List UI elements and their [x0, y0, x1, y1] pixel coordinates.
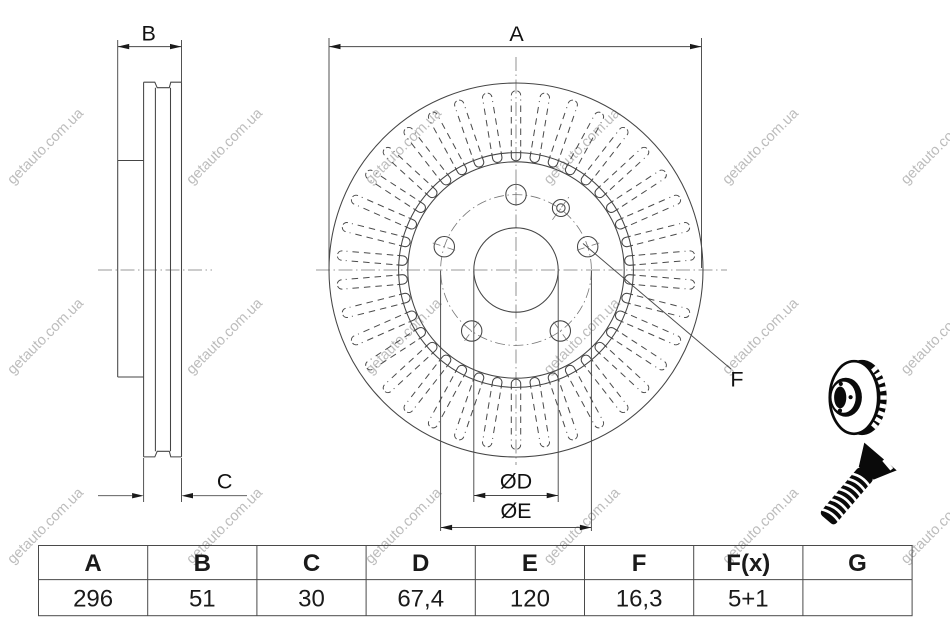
svg-text:5+1: 5+1: [728, 585, 769, 612]
svg-text:B: B: [194, 550, 211, 577]
svg-text:ØE: ØE: [500, 499, 531, 523]
svg-text:296: 296: [73, 585, 113, 612]
svg-text:D: D: [412, 550, 429, 577]
svg-text:B: B: [142, 22, 156, 46]
svg-text:C: C: [217, 470, 233, 494]
svg-text:A: A: [84, 550, 101, 577]
svg-text:F(x): F(x): [726, 550, 770, 577]
svg-text:67,4: 67,4: [397, 585, 444, 612]
svg-text:F: F: [730, 368, 743, 392]
svg-text:E: E: [522, 550, 538, 577]
svg-text:120: 120: [510, 585, 550, 612]
svg-text:F: F: [632, 550, 647, 577]
svg-text:C: C: [303, 550, 320, 577]
svg-text:51: 51: [189, 585, 216, 612]
svg-text:ØD: ØD: [500, 470, 532, 494]
svg-text:16,3: 16,3: [616, 585, 663, 612]
svg-text:G: G: [848, 550, 867, 577]
svg-text:30: 30: [298, 585, 325, 612]
svg-text:A: A: [509, 22, 524, 46]
